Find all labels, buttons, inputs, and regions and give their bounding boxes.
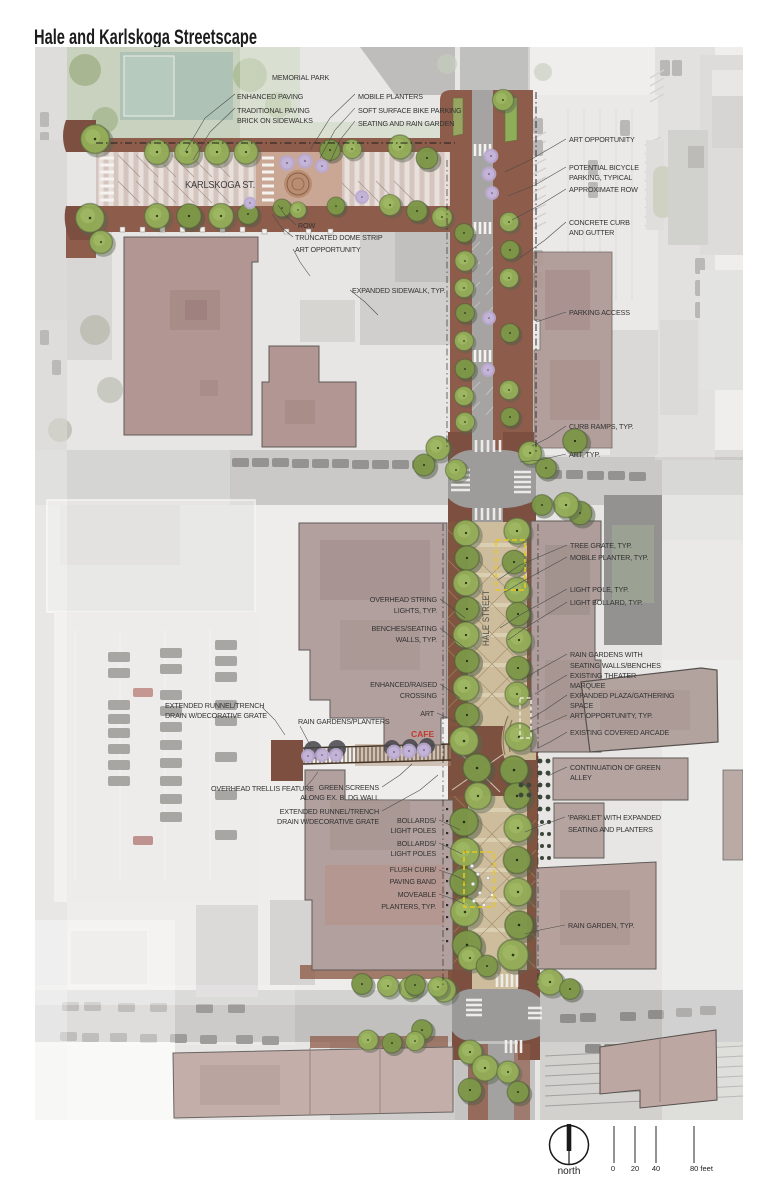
svg-text:LIGHT POLES: LIGHT POLES	[391, 826, 437, 835]
svg-text:ART: ART	[420, 709, 435, 718]
svg-text:ART OPPORTUNITY: ART OPPORTUNITY	[295, 245, 361, 254]
svg-text:MOVEABLE: MOVEABLE	[398, 890, 437, 899]
svg-text:BOLLARDS/: BOLLARDS/	[397, 816, 436, 825]
svg-text:PARKING ACCESS: PARKING ACCESS	[569, 308, 630, 317]
svg-text:40: 40	[652, 1164, 660, 1173]
svg-text:ART OPPORTUNITY, TYP.: ART OPPORTUNITY, TYP.	[570, 711, 653, 720]
svg-text:TRADITIONAL PAVING: TRADITIONAL PAVING	[237, 106, 310, 115]
svg-text:MARQUEE: MARQUEE	[570, 681, 606, 690]
svg-text:0: 0	[611, 1164, 615, 1173]
svg-text:SPACE: SPACE	[570, 701, 593, 710]
svg-text:ENHANCED/RAISED: ENHANCED/RAISED	[370, 680, 437, 689]
svg-text:PAVING BAND: PAVING BAND	[390, 877, 436, 886]
svg-text:ENHANCED PAVING: ENHANCED PAVING	[237, 92, 304, 101]
svg-text:OVERHEAD TRELLIS FEATURE: OVERHEAD TRELLIS FEATURE	[211, 784, 314, 793]
svg-text:ROW: ROW	[298, 221, 315, 230]
svg-text:LIGHTS, TYP.: LIGHTS, TYP.	[394, 606, 437, 615]
svg-text:BOLLARDS/: BOLLARDS/	[397, 839, 436, 848]
svg-text:EXISTING THEATER: EXISTING THEATER	[570, 671, 636, 680]
svg-text:EXTENDED RUNNEL/TRENCH: EXTENDED RUNNEL/TRENCH	[280, 807, 379, 816]
svg-text:CONCRETE CURB: CONCRETE CURB	[569, 218, 630, 227]
svg-text:ART OPPORTUNITY: ART OPPORTUNITY	[569, 135, 635, 144]
svg-text:TREE GRATE, TYP.: TREE GRATE, TYP.	[570, 541, 632, 550]
svg-text:AND GUTTER: AND GUTTER	[569, 228, 614, 237]
svg-text:CROSSING: CROSSING	[400, 691, 438, 700]
svg-text:BENCHES/SEATING: BENCHES/SEATING	[371, 624, 437, 633]
svg-text:DRAIN W/DECORATIVE GRATE: DRAIN W/DECORATIVE GRATE	[165, 711, 267, 720]
svg-text:PLANTERS, TYP.: PLANTERS, TYP.	[381, 902, 436, 911]
svg-text:EXISTING COVERED ARCADE: EXISTING COVERED ARCADE	[570, 728, 670, 737]
svg-text:RAIN GARDENS/PLANTERS: RAIN GARDENS/PLANTERS	[298, 717, 390, 726]
svg-text:BRICK ON SIDEWALKS: BRICK ON SIDEWALKS	[237, 116, 313, 125]
svg-text:SEATING WALLS/BENCHES: SEATING WALLS/BENCHES	[570, 661, 661, 670]
svg-text:ALLEY: ALLEY	[570, 773, 592, 782]
svg-text:RAIN GARDENS WITH: RAIN GARDENS WITH	[570, 650, 643, 659]
svg-text:'PARKLET' WITH EXPANDED: 'PARKLET' WITH EXPANDED	[568, 813, 661, 822]
svg-text:EXPANDED PLAZA/GATHERING: EXPANDED PLAZA/GATHERING	[570, 691, 675, 700]
svg-text:CONTINUATION OF GREEN: CONTINUATION OF GREEN	[570, 763, 661, 772]
svg-text:20: 20	[631, 1164, 639, 1173]
svg-text:OVERHEAD STRING: OVERHEAD STRING	[370, 595, 438, 604]
svg-text:PARKING, TYPICAL: PARKING, TYPICAL	[569, 173, 632, 182]
svg-text:MOBILE PLANTER, TYP.: MOBILE PLANTER, TYP.	[570, 553, 648, 562]
svg-text:WALLS, TYP.: WALLS, TYP.	[396, 635, 438, 644]
svg-text:POTENTIAL BICYCLE: POTENTIAL BICYCLE	[569, 163, 639, 172]
svg-text:Hale and Karlskoga Streetscape: Hale and Karlskoga Streetscape	[34, 26, 257, 49]
svg-text:EXPANDED SIDEWALK, TYP.: EXPANDED SIDEWALK, TYP.	[352, 286, 445, 295]
svg-text:CURB RAMPS, TYP.: CURB RAMPS, TYP.	[569, 422, 634, 431]
svg-text:ART, TYP.: ART, TYP.	[569, 450, 600, 459]
svg-text:LIGHT POLES: LIGHT POLES	[391, 849, 437, 858]
svg-text:APPROXIMATE ROW: APPROXIMATE ROW	[569, 185, 638, 194]
svg-text:MEMORIAL PARK: MEMORIAL PARK	[272, 73, 330, 82]
svg-text:ALONG EX. BLDG WALL: ALONG EX. BLDG WALL	[300, 793, 379, 802]
svg-text:CAFE: CAFE	[411, 729, 434, 739]
svg-text:HALE STREET: HALE STREET	[480, 590, 491, 646]
svg-text:FLUSH CURB/: FLUSH CURB/	[390, 865, 436, 874]
svg-text:MOBILE PLANTERS: MOBILE PLANTERS	[358, 92, 423, 101]
svg-text:SEATING AND RAIN GARDEN: SEATING AND RAIN GARDEN	[358, 119, 454, 128]
svg-text:TRUNCATED DOME STRIP: TRUNCATED DOME STRIP	[295, 233, 383, 242]
svg-text:LIGHT POLE, TYP.: LIGHT POLE, TYP.	[570, 585, 629, 594]
svg-text:DRAIN W/DECORATIVE GRATE: DRAIN W/DECORATIVE GRATE	[277, 817, 379, 826]
svg-text:north: north	[558, 1166, 581, 1177]
svg-text:SOFT SURFACE BIKE PARKING: SOFT SURFACE BIKE PARKING	[358, 106, 462, 115]
svg-text:SEATING AND PLANTERS: SEATING AND PLANTERS	[568, 825, 653, 834]
svg-text:LIGHT BOLLARD, TYP.: LIGHT BOLLARD, TYP.	[570, 598, 643, 607]
svg-text:KARLSKOGA ST.: KARLSKOGA ST.	[185, 180, 255, 191]
svg-text:RAIN GARDEN, TYP.: RAIN GARDEN, TYP.	[568, 921, 634, 930]
svg-text:EXTENDED RUNNEL/TRENCH: EXTENDED RUNNEL/TRENCH	[165, 701, 264, 710]
svg-text:GREEN SCREENS: GREEN SCREENS	[319, 783, 380, 792]
svg-text:80 feet: 80 feet	[690, 1164, 714, 1173]
